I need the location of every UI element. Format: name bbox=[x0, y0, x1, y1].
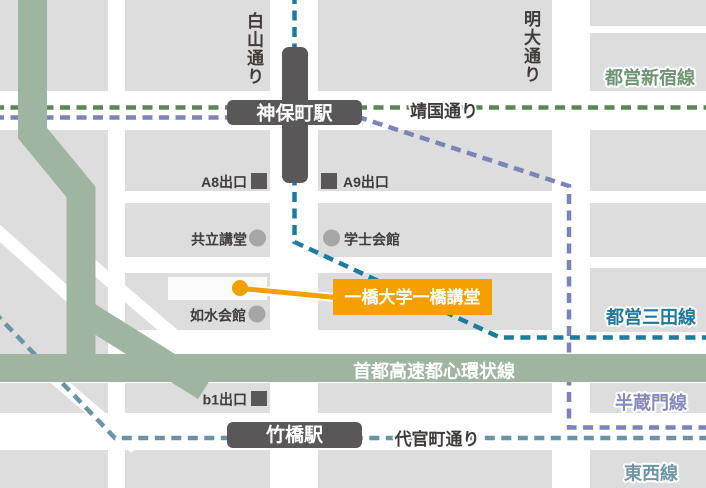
block bbox=[125, 130, 270, 191]
block bbox=[318, 0, 552, 91]
exit-a9-label: A9出口 bbox=[343, 174, 389, 190]
block bbox=[590, 0, 706, 26]
exit-a9-icon bbox=[321, 173, 337, 189]
tozai-line-label: 東西線 bbox=[624, 463, 678, 484]
kyoritsu-label: 共立講堂 bbox=[191, 232, 247, 248]
daikancho-street-label: 代官町通り bbox=[394, 429, 480, 449]
josui-label: 如水会館 bbox=[190, 308, 246, 324]
block bbox=[0, 0, 108, 91]
expressway-label: 首都高速都心環状線 bbox=[353, 361, 515, 382]
exit-a8-label: A8出口 bbox=[201, 174, 247, 190]
yasukuni-street-label: 靖国通り bbox=[410, 102, 478, 121]
exit-b1-label: b1出口 bbox=[203, 392, 247, 408]
josui-dot-icon bbox=[249, 306, 266, 323]
block bbox=[590, 203, 706, 257]
block bbox=[125, 203, 270, 257]
map-canvas: 一橋大学一橋講堂 靖国通り 代官町通り 首都高速都心環状線 神保町駅 竹橋駅 A… bbox=[0, 0, 706, 488]
gakushi-dot-icon bbox=[323, 230, 340, 247]
shinjuku-line-label: 都営新宿線 bbox=[604, 67, 695, 88]
mita-line-label: 都営三田線 bbox=[605, 307, 696, 328]
block bbox=[590, 130, 706, 191]
exit-a8-icon bbox=[251, 173, 267, 189]
kyoritsu-dot-icon bbox=[249, 230, 266, 247]
destination-label: 一橋大学一橋講堂 bbox=[345, 287, 481, 307]
destination-marker-dot bbox=[232, 280, 248, 296]
block bbox=[318, 383, 552, 413]
block bbox=[318, 450, 552, 488]
access-map: 一橋大学一橋講堂 靖国通り 代官町通り 首都高速都心環状線 神保町駅 竹橋駅 A… bbox=[0, 0, 706, 488]
block bbox=[318, 203, 552, 257]
exit-b1-icon bbox=[251, 391, 267, 406]
hakusan-street-label: 白山通り bbox=[245, 12, 262, 86]
jimbocho-station-label: 神保町駅 bbox=[256, 102, 333, 125]
block bbox=[0, 450, 108, 488]
takebashi-station-label: 竹橋駅 bbox=[265, 423, 324, 446]
gakushi-label: 学士会館 bbox=[344, 232, 400, 248]
block bbox=[125, 450, 270, 488]
meidai-street-label: 明大通り bbox=[522, 10, 539, 84]
hanzomon-line-label: 半蔵門線 bbox=[615, 392, 687, 413]
